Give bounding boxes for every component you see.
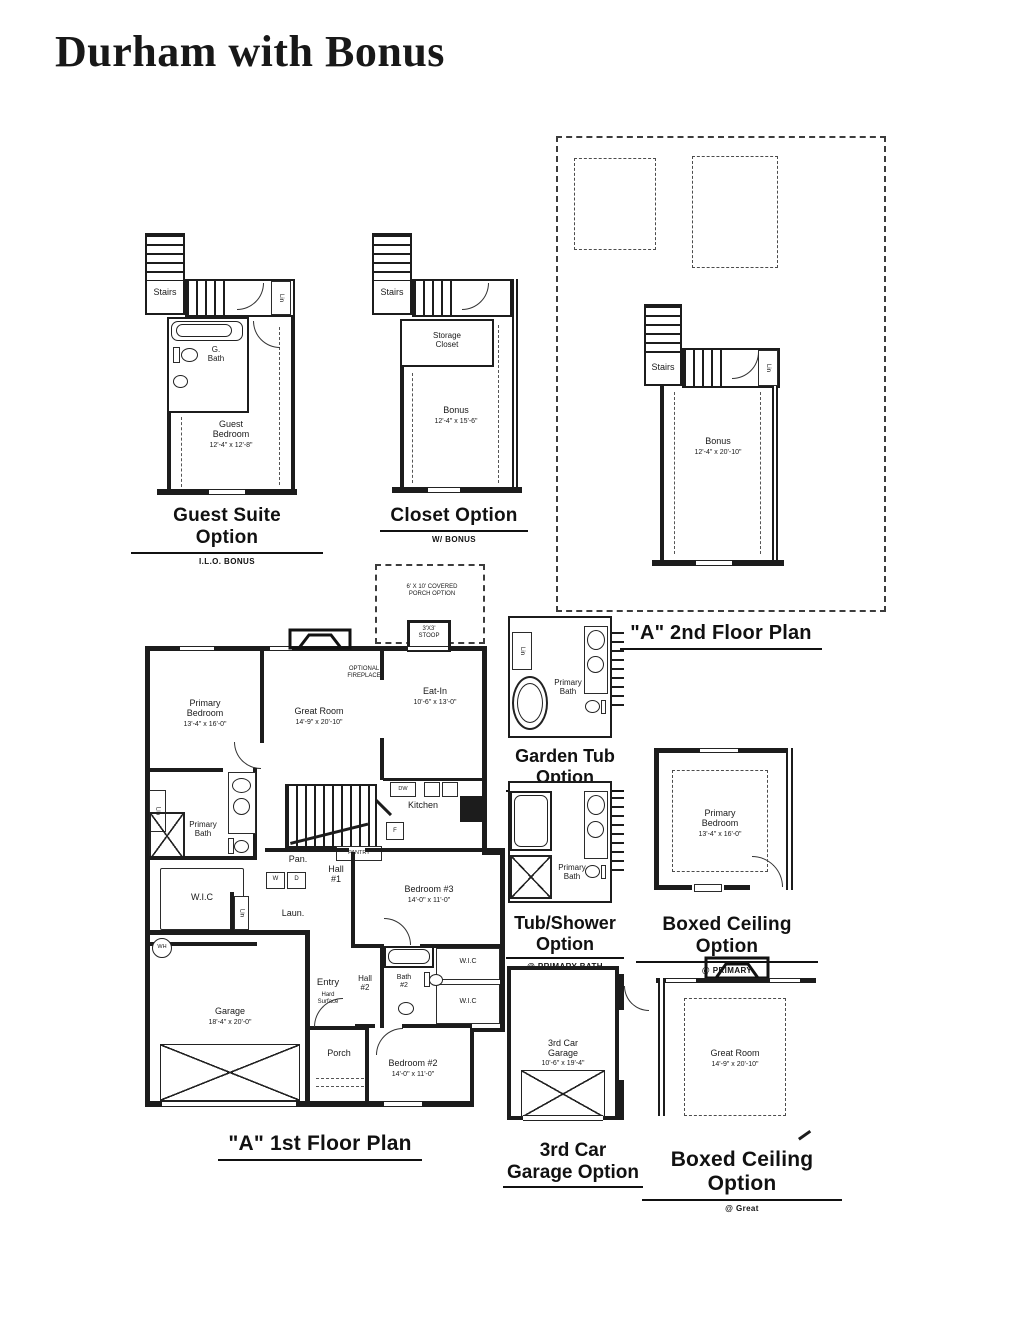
dryer-label: D <box>287 876 306 883</box>
toilet-tank-icon <box>601 700 606 714</box>
wall <box>145 768 223 772</box>
plan-title-tub-shower-line2: Option <box>506 934 624 955</box>
wall <box>260 646 264 743</box>
wall <box>654 885 692 890</box>
wall <box>472 1028 505 1032</box>
fridge-label: F <box>386 828 404 835</box>
sink-icon <box>398 1002 414 1015</box>
room-label-primary-bath: Primary Bath <box>550 863 594 881</box>
door-arc <box>624 986 649 1011</box>
porch-option-note: 6' X 10' COVERED PORCH OPTION <box>390 584 474 598</box>
wall <box>400 367 404 491</box>
wall <box>365 1028 369 1103</box>
room-dims-bedroom2: 14'-0" x 11'-0" <box>358 1071 468 1079</box>
sink-icon <box>173 375 188 388</box>
porch-step <box>316 1078 364 1079</box>
wall <box>724 885 750 890</box>
stair-treads <box>287 786 375 846</box>
first-floor-plan: 6' X 10' COVERED PORCH OPTION 3'X3' STOO… <box>140 558 520 1178</box>
room-dims-bedroom3: 14'-0" x 11'-0" <box>372 897 486 905</box>
window <box>770 978 800 983</box>
toilet-icon <box>429 974 443 986</box>
plan-title-guest-suite: Guest Suite Option <box>131 505 323 554</box>
room-dims-great-room: 14'-9" x 20'-10" <box>690 1061 780 1069</box>
wall <box>660 386 664 564</box>
toilet-tank-icon <box>601 865 606 879</box>
window <box>694 884 722 892</box>
room-label-wic2: W.I.C <box>446 958 490 966</box>
storage-closet-label: Storage Closet <box>410 331 484 349</box>
linen-closet: Lin <box>758 350 778 386</box>
room-label-primary-bath: Primary Bath <box>180 820 226 838</box>
room-dims-primary-bedroom: 13'-4" x 16'-0" <box>150 721 260 729</box>
tick-mark <box>798 1130 811 1140</box>
room-dims-bonus: 12'-4" x 20'-10" <box>668 449 768 457</box>
window <box>209 489 245 495</box>
room-dims-great-room: 14'-9" x 20'-10" <box>266 719 372 727</box>
stairs-label: Stairs <box>640 362 686 372</box>
plan-subtitle-boxed-great: @ Great <box>642 1204 842 1213</box>
linen-closet: Lin <box>234 896 249 930</box>
boxed-ceiling-primary-plan: Primary Bedroom 13'-4" x 16'-0" Boxed Ce… <box>648 740 806 958</box>
plan-title-first-floor: "A" 1st Floor Plan <box>218 1132 421 1161</box>
room-label-primary-bedroom: Primary Bedroom <box>150 698 260 719</box>
wall <box>658 978 665 1116</box>
door-arc <box>234 742 261 769</box>
window <box>384 1101 422 1107</box>
wall <box>380 738 384 780</box>
plan-title-boxed-great: Boxed Ceiling Option <box>642 1148 842 1201</box>
room-dims-bonus: 12'-4" x 15'-6" <box>406 418 506 426</box>
wall <box>482 646 487 855</box>
sink-icon <box>587 795 605 815</box>
bath-label: G. Bath <box>195 345 237 363</box>
room-label-great-room: Great Room <box>266 706 372 716</box>
wall <box>149 930 310 935</box>
garden-tub-inner <box>517 683 543 723</box>
sink-icon <box>587 656 604 673</box>
stairs-label: Stairs <box>370 287 414 297</box>
dimension-line <box>412 373 413 483</box>
room-label-laundry: Laun. <box>270 908 316 918</box>
wall <box>654 748 659 890</box>
water-heater-label: WH <box>152 944 172 950</box>
fireplace-icon <box>288 628 352 650</box>
page-title: Durham with Bonus <box>55 26 445 77</box>
wall <box>470 1028 474 1107</box>
kitchen-counter <box>383 778 483 781</box>
kitchen-sink-icon <box>442 782 458 797</box>
wall <box>772 386 778 564</box>
wall <box>402 1024 472 1028</box>
room-label-eat-in: Eat-In <box>390 686 480 696</box>
toilet-icon <box>234 840 249 853</box>
stair-treads <box>147 235 183 281</box>
dimension-line <box>760 392 761 554</box>
door-arc <box>253 321 280 348</box>
stoop-label: 3'X3' STOOP <box>407 626 451 640</box>
window <box>700 748 738 753</box>
room-dims-guest-bedroom: 12'-4" x 12'-8" <box>181 442 281 450</box>
shower <box>510 855 552 899</box>
garage-door-x <box>160 1044 300 1101</box>
window <box>428 487 460 493</box>
room-label-wic3: W.I.C <box>446 998 490 1006</box>
sink-icon <box>587 630 605 650</box>
stair-treads <box>187 281 231 315</box>
wall <box>265 848 349 852</box>
wall <box>145 856 257 860</box>
kitchen-sink-icon <box>424 782 440 797</box>
dimension-line <box>498 325 499 483</box>
roof-opening <box>692 156 778 268</box>
room-label-wic: W.I.C <box>174 892 230 902</box>
toilet-tank-icon <box>173 347 180 363</box>
wall <box>619 1080 624 1120</box>
tub-inner <box>176 324 232 337</box>
floor-plan-sheet: Durham with Bonus Stairs Lin G. Bath Gue… <box>0 0 1020 1320</box>
door-arc <box>376 1028 403 1055</box>
room-label-guest-bedroom: Guest Bedroom <box>181 419 281 440</box>
closet-option-plan: Stairs Storage Closet Bonus 12'-4" x 15'… <box>366 233 541 563</box>
plan-title-second-floor: "A" 2nd Floor Plan <box>620 622 821 650</box>
wall <box>365 848 505 852</box>
room-label-hall2: Hall #2 <box>348 974 382 992</box>
room-label-hall1: Hall #1 <box>316 864 356 885</box>
garden-tub-option-plan: Lin Primary Bath Garden Tub Option @ PRI… <box>506 614 626 794</box>
door-opening <box>408 646 448 651</box>
room-label-bonus: Bonus <box>406 405 506 415</box>
wall <box>786 748 793 890</box>
window <box>180 646 214 651</box>
stair-hatch <box>612 632 624 712</box>
tub-inner <box>388 949 430 964</box>
room-label-bonus: Bonus <box>668 436 768 446</box>
wall <box>512 279 518 493</box>
tub-shower-option-plan: Primary Bath Tub/Shower Option @ PRIMARY… <box>506 779 626 959</box>
garage-door-opening <box>162 1101 296 1107</box>
sink-icon <box>232 778 251 793</box>
wall <box>619 974 624 1010</box>
room-label-great-room: Great Room <box>700 1048 770 1058</box>
plan-title-third-car-line1: 3rd Car <box>503 1140 643 1162</box>
dishwasher-label: DW <box>390 786 416 792</box>
room-label-pantry: Pan. <box>278 854 318 864</box>
room-dims-garage: 18'-4" x 20'-0" <box>182 1019 278 1027</box>
wall <box>291 317 295 493</box>
washer-label: W <box>266 876 285 883</box>
dimension-line <box>674 392 675 554</box>
guest-suite-plan: Stairs Lin G. Bath Guest Bedroom 12'-4" … <box>143 233 313 563</box>
boxed-ceiling-great-plan: Great Room 14'-9" x 20'-10" Boxed Ceilin… <box>648 952 840 1192</box>
plan-subtitle-closet-option: W/ BONUS <box>358 535 550 544</box>
plan-title-third-car-line2: Garage Option <box>503 1162 643 1184</box>
third-car-garage-plan: 3rd Car Garage 10'-6" x 19'-4" 3rd Car G… <box>503 960 645 1192</box>
stair-treads <box>374 235 410 281</box>
room-label-primary-bedroom: Primary Bedroom <box>682 808 758 829</box>
window <box>666 978 696 983</box>
dimension-line <box>279 327 280 485</box>
wall <box>305 930 310 1103</box>
plan-title-closet-option: Closet Option <box>380 505 527 532</box>
sink-icon <box>587 821 604 838</box>
garage-door-opening <box>523 1115 603 1121</box>
wall <box>351 944 381 948</box>
tub-inner <box>514 795 548 847</box>
room-dims-primary-bedroom: 13'-4" x 16'-0" <box>682 831 758 839</box>
room-label-garage: Garage <box>182 1006 278 1016</box>
linen-closet: Lin <box>271 281 291 315</box>
door-arc <box>384 918 411 945</box>
roof-opening <box>574 158 656 250</box>
room-dims-eat-in: 10'-6" x 13'-0" <box>390 699 480 707</box>
fireplace-icon <box>704 956 770 980</box>
second-floor-plan: Stairs Lin Bonus 12'-4" x 20'-10" "A" 2n… <box>556 136 896 661</box>
room-dims-3rd-car-garage: 10'-6" x 19'-4" <box>521 1060 605 1068</box>
sink-icon <box>233 798 250 815</box>
garage-door-x <box>521 1070 605 1118</box>
plan-title-tub-shower-line1: Tub/Shower <box>506 913 624 934</box>
room-label-primary-bath: Primary Bath <box>546 678 590 696</box>
stair-hatch <box>612 797 624 877</box>
plan-title-garden-tub-line1: Garden Tub <box>506 746 624 767</box>
stair-treads <box>684 350 728 386</box>
linen-closet: Lin <box>512 632 532 670</box>
room-label-kitchen: Kitchen <box>395 800 451 810</box>
range-box <box>460 796 482 822</box>
wall <box>380 646 384 680</box>
wall <box>167 413 171 493</box>
window <box>696 560 732 566</box>
stair-treads <box>414 281 456 315</box>
room-label-bedroom2: Bedroom #2 <box>358 1058 468 1068</box>
room-label-porch: Porch <box>314 1048 364 1058</box>
room-label-bath2: Bath #2 <box>386 974 422 990</box>
wall <box>351 852 355 948</box>
room-label-entry: Entry <box>306 978 350 989</box>
room-label-3rd-car-garage: 3rd Car Garage <box>531 1038 595 1059</box>
stair-treads <box>646 306 680 354</box>
room-label-bedroom3: Bedroom #3 <box>372 884 486 894</box>
toilet-icon <box>585 700 600 713</box>
porch-step <box>316 1086 364 1087</box>
stairs-label: Stairs <box>143 287 187 297</box>
